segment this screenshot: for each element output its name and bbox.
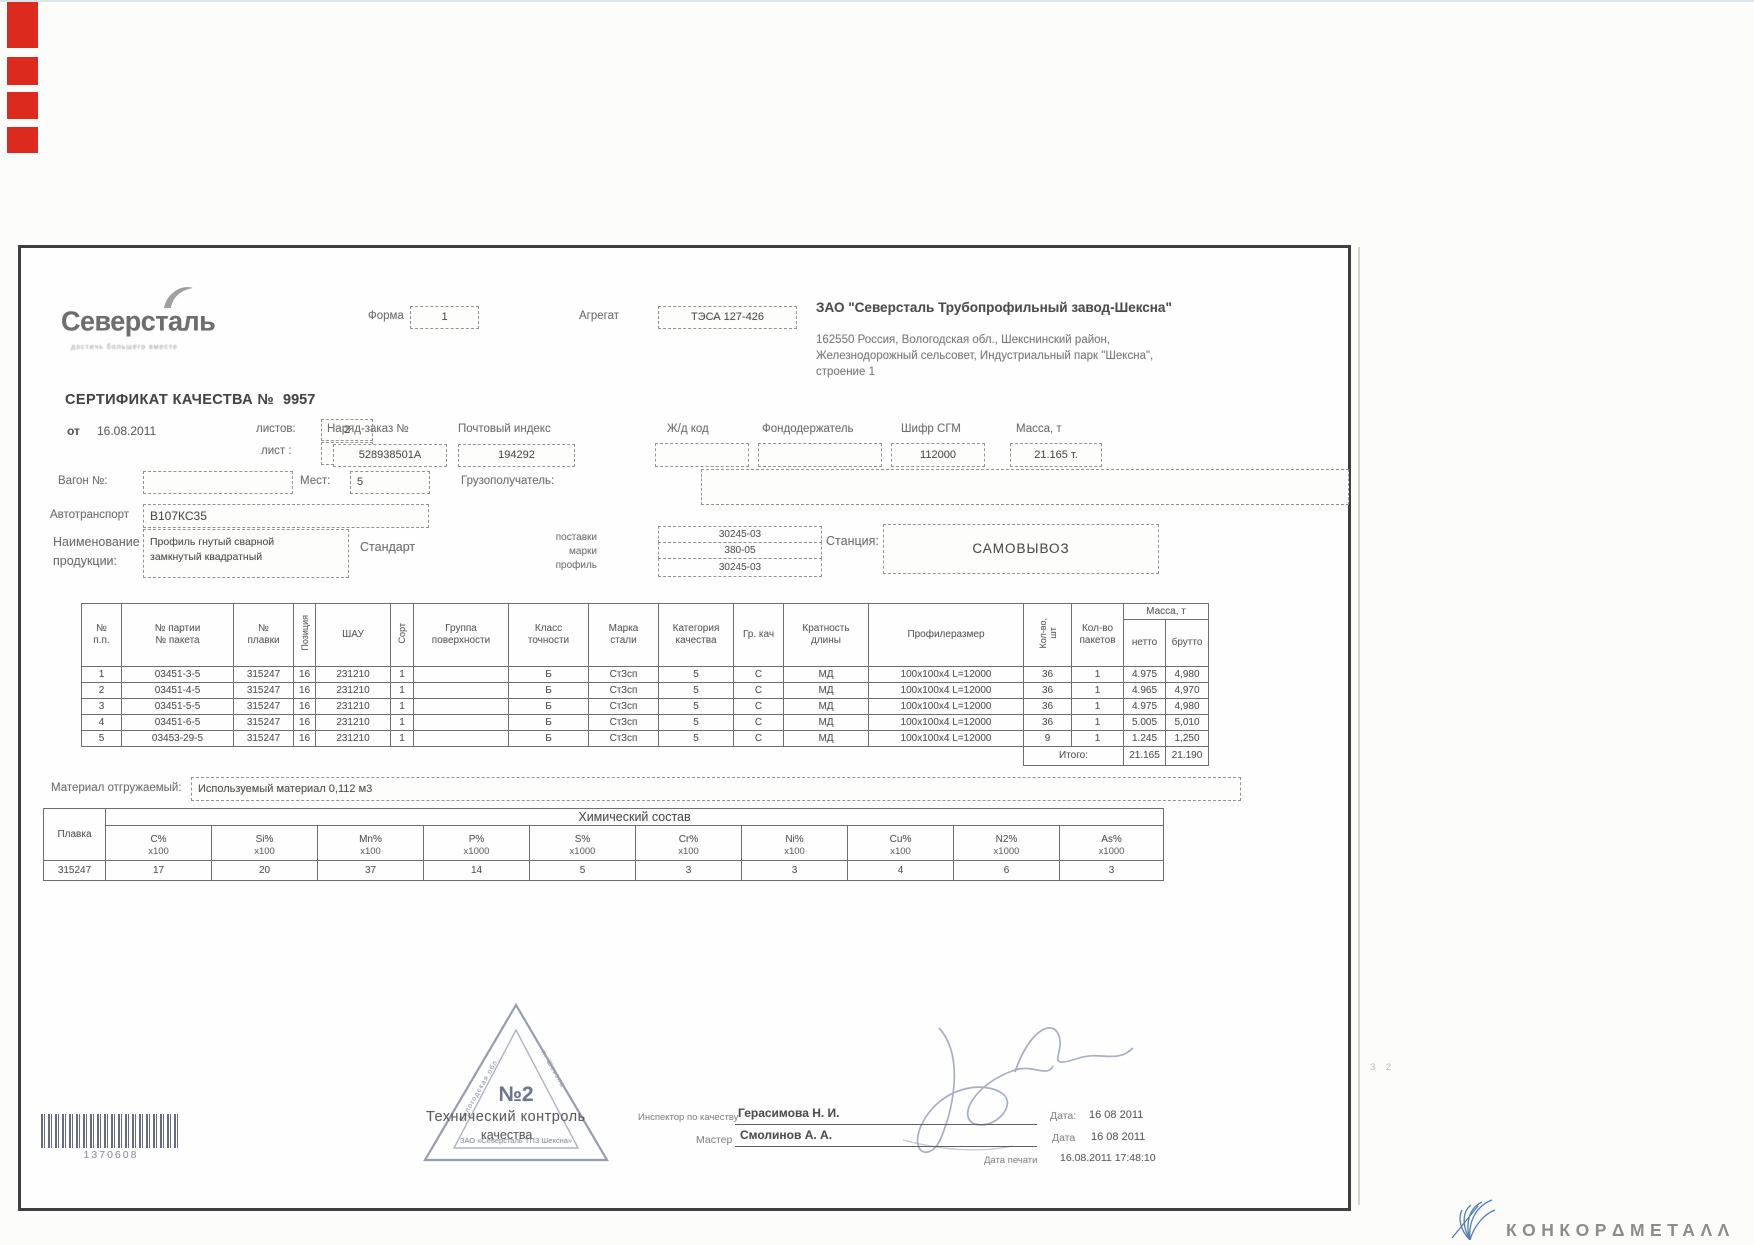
wagon-label: Вагон №: <box>58 475 107 487</box>
table-cell: 3 <box>636 861 742 881</box>
scan-edge-line <box>0 0 1754 2</box>
total-gross: 21.190 <box>1166 747 1209 766</box>
company-address-line: Железнодорожный сельсовет, Индустриальны… <box>816 348 1246 364</box>
master-date: 16 08 2011 <box>1091 1131 1145 1143</box>
table-cell: Ст3сп <box>589 731 659 747</box>
scan-artifact-red-mark <box>7 92 38 119</box>
master-name: Смолинов А. А. <box>740 1128 832 1142</box>
table-cell: 5 <box>82 731 122 747</box>
standard-row-value-box: 30245-03 <box>658 558 822 577</box>
certificate-title: СЕРТИФИКАТ КАЧЕСТВА № <box>65 392 274 408</box>
fundholder-label: Фондодержатель <box>762 423 854 435</box>
scan-artifact-red-mark <box>7 57 38 85</box>
table-header-cell: Профилеразмер <box>869 604 1024 667</box>
table-cell <box>414 667 509 683</box>
table-cell: 231210 <box>316 667 391 683</box>
table-cell: 100x100x4 L=12000 <box>869 683 1024 699</box>
brand-swoosh-icon <box>161 284 195 315</box>
table-cell: 4 <box>848 861 954 881</box>
print-date-label: Дата печати <box>984 1155 1037 1166</box>
table-cell: МД <box>784 731 869 747</box>
table-header-cell: № партии № пакета <box>122 604 234 667</box>
table-cell: Б <box>509 715 589 731</box>
master-label: Мастер <box>696 1134 732 1146</box>
table-header-cell: Категория качества <box>659 604 734 667</box>
table-cell: Б <box>509 683 589 699</box>
table-cell: Б <box>509 731 589 747</box>
sgm-cipher-label: Шифр СГМ <box>901 423 961 435</box>
table-cell: 5.005 <box>1124 715 1166 731</box>
station-value-box: САМОВЫВОЗ <box>883 524 1159 574</box>
table-cell: С <box>734 731 784 747</box>
product-name-label: Наименование <box>53 535 140 549</box>
standard-row-value-box: 380-05 <box>658 542 822 559</box>
mass-label: Масса, т <box>1016 423 1062 435</box>
konkord-fan-icon <box>1450 1198 1496 1245</box>
table-cell <box>414 699 509 715</box>
table-cell: 5 <box>659 667 734 683</box>
table-cell: С <box>734 715 784 731</box>
table-cell: 03451-4-5 <box>122 683 234 699</box>
table-header-cell: Кол-во, шт <box>1024 604 1072 667</box>
table-cell: Б <box>509 699 589 715</box>
table-cell: 5,010 <box>1166 715 1209 731</box>
signature-line <box>735 1146 1037 1147</box>
material-label: Материал отгружаемый: <box>51 782 182 794</box>
rail-code-label: Ж/д код <box>667 423 709 435</box>
inspector-name: Герасимова Н. И. <box>738 1106 840 1120</box>
total-label: Итого: <box>1024 747 1124 766</box>
table-cell: С <box>734 667 784 683</box>
table-cell: 1 <box>1072 731 1124 747</box>
table-cell: 4.965 <box>1124 683 1166 699</box>
table-header-cell: Позиция <box>294 604 316 667</box>
barcode-number: 1370608 <box>51 1149 171 1161</box>
table-header-cell: Ni%x100 <box>742 826 848 861</box>
table-header-cell: № плавки <box>234 604 294 667</box>
date-label: от <box>67 424 80 438</box>
table-cell: 231210 <box>316 699 391 715</box>
table-cell: 5 <box>530 861 636 881</box>
table-total-row: Итого: 21.165 21.190 <box>82 747 1209 766</box>
table-cell: 315247 <box>44 861 106 881</box>
table-cell: 4.975 <box>1124 667 1166 683</box>
table-cell: 03451-3-5 <box>122 667 234 683</box>
table-cell: 03453-29-5 <box>122 731 234 747</box>
table-row: 315247 17 20 37 14 5 3 3 4 6 3 <box>44 861 1164 881</box>
sgm-cipher-value-box: 112000 <box>891 443 985 467</box>
table-cell: 4,980 <box>1166 699 1209 715</box>
table-cell: 231210 <box>316 731 391 747</box>
table-cell: МД <box>784 715 869 731</box>
table-cell: 231210 <box>316 683 391 699</box>
technical-control-text: Технический контроль <box>426 1109 586 1125</box>
table-cell: 3 <box>82 699 122 715</box>
table-cell: МД <box>784 667 869 683</box>
table-cell: 16 <box>294 683 316 699</box>
signature-scribble-icon <box>843 1020 1058 1175</box>
table-cell: 315247 <box>234 699 294 715</box>
table-cell: 5 <box>659 731 734 747</box>
table-cell: МД <box>784 699 869 715</box>
table-cell: 100x100x4 L=12000 <box>869 731 1024 747</box>
page-mark: 3 2 <box>1370 1062 1395 1073</box>
technical-control-text: качества <box>481 1128 532 1142</box>
quality-control-stamp-icon: №2 Вологодская обл. п. Шексна ЗАО «Север… <box>417 1000 615 1171</box>
table-cell: 1 <box>1072 683 1124 699</box>
table-header-cell: № п.п. <box>82 604 122 667</box>
aggregate-label: Агрегат <box>579 310 619 322</box>
table-cell: 5 <box>659 699 734 715</box>
table-cell: 03451-6-5 <box>122 715 234 731</box>
table-header-cell: Сорт <box>391 604 414 667</box>
table-header-cell: Cr%x100 <box>636 826 742 861</box>
product-name-label: продукции: <box>53 554 117 568</box>
table-cell: С <box>734 683 784 699</box>
table-header-cell: Группа поверхности <box>414 604 509 667</box>
consignee-value-box <box>701 469 1349 505</box>
table-header-cell: Масса, т <box>1124 604 1209 620</box>
company-address-line: 162550 Россия, Вологодская обл., Шекснин… <box>816 332 1246 348</box>
form-value-box: 1 <box>410 306 479 329</box>
chem-table-title: Химический состав <box>106 809 1164 826</box>
table-cell: 1,250 <box>1166 731 1209 747</box>
table-cell: Ст3сп <box>589 715 659 731</box>
standard-row-label: поставки <box>521 532 597 543</box>
table-header-cell: ШАУ <box>316 604 391 667</box>
table-cell: 6 <box>954 861 1060 881</box>
table-header-cell: As%x1000 <box>1060 826 1164 861</box>
table-cell: 36 <box>1024 715 1072 731</box>
table-cell: 1 <box>1072 667 1124 683</box>
page-edge-line <box>1358 247 1360 1205</box>
table-header-cell: брутто <box>1166 620 1209 667</box>
table-cell: МД <box>784 683 869 699</box>
brand-tagline: достичь большего вместе <box>71 344 178 351</box>
date-label: Дата <box>1052 1132 1075 1144</box>
table-cell: 1 <box>1072 699 1124 715</box>
table-cell: 5 <box>659 715 734 731</box>
date-value: 16.08.2011 <box>97 424 156 438</box>
consignee-label: Грузополучатель: <box>461 475 554 487</box>
table-cell: С <box>734 699 784 715</box>
sheet-label: лист : <box>261 445 292 457</box>
table-cell: Ст3сп <box>589 683 659 699</box>
sheets-label: листов: <box>256 423 296 435</box>
company-address-line: строение 1 <box>816 364 1246 380</box>
table-cell: 17 <box>106 861 212 881</box>
table-cell: 4.975 <box>1124 699 1166 715</box>
scan-artifact-red-mark <box>7 127 38 153</box>
certificate-sheet: Северсталь достичь большего вместе Форма… <box>18 245 1351 1211</box>
table-cell: 37 <box>318 861 424 881</box>
barcode-icon <box>41 1114 181 1148</box>
table-cell: 14 <box>424 861 530 881</box>
postal-index-label: Почтовый индекс <box>458 423 551 435</box>
table-cell: 1 <box>391 683 414 699</box>
signature-line <box>735 1124 1037 1125</box>
table-row: 403451-6-5315247162312101БСт3сп5СМД100x1… <box>82 715 1209 731</box>
order-label: Наряд-заказ № <box>327 423 409 435</box>
table-cell: 1 <box>1072 715 1124 731</box>
table-cell: 36 <box>1024 667 1072 683</box>
auto-transport-value-box: В107КС35 <box>143 504 429 528</box>
table-cell: 20 <box>212 861 318 881</box>
rail-code-value-box <box>655 443 749 467</box>
table-row: 103451-3-5315247162312101БСт3сп5СМД100x1… <box>82 667 1209 683</box>
station-label: Станция: <box>826 534 879 548</box>
table-cell: 315247 <box>234 715 294 731</box>
table-cell: 16 <box>294 667 316 683</box>
product-name-line: замкнутый квадратный <box>150 550 348 565</box>
print-date-value: 16.08.2011 17:48:10 <box>1060 1152 1156 1164</box>
table-header-cell: N2%x1000 <box>954 826 1060 861</box>
table-cell <box>82 747 1024 766</box>
mass-value-box: 21.165 т. <box>1010 443 1102 467</box>
order-value-box: 528938501А <box>333 444 447 467</box>
shipment-table: № п.п. № партии № пакета № плавки Позици… <box>81 603 1209 766</box>
table-cell: 4 <box>82 715 122 731</box>
places-label: Мест: <box>300 475 330 487</box>
certificate-number: 9957 <box>283 392 315 408</box>
table-cell: 9 <box>1024 731 1072 747</box>
table-row: 203451-4-5315247162312101БСт3сп5СМД100x1… <box>82 683 1209 699</box>
table-cell: 1 <box>391 699 414 715</box>
table-cell <box>414 715 509 731</box>
total-net: 21.165 <box>1124 747 1166 766</box>
table-cell: 231210 <box>316 715 391 731</box>
table-header-cell: Гр. кач <box>734 604 784 667</box>
table-cell: 16 <box>294 715 316 731</box>
table-cell: 315247 <box>234 667 294 683</box>
table-header-cell: Si%x100 <box>212 826 318 861</box>
table-cell: 1 <box>391 731 414 747</box>
standard-label: Стандарт <box>360 540 415 554</box>
table-cell: 4,970 <box>1166 683 1209 699</box>
table-cell: Ст3сп <box>589 699 659 715</box>
standard-row-label: марки <box>521 546 597 557</box>
table-header-cell: Класс точности <box>509 604 589 667</box>
table-header-cell: S%x1000 <box>530 826 636 861</box>
table-cell <box>414 683 509 699</box>
table-header-cell: Кол-во пакетов <box>1072 604 1124 667</box>
scan-artifact-red-mark <box>7 2 38 48</box>
table-cell: 16 <box>294 731 316 747</box>
table-cell: 1 <box>391 667 414 683</box>
table-row: 503453-29-5315247162312101БСт3сп5СМД100x… <box>82 731 1209 747</box>
inspector-date: 16 08 2011 <box>1089 1109 1143 1121</box>
material-value-box: Используемый материал 0,112 м3 <box>191 777 1241 801</box>
table-cell: 03451-5-5 <box>122 699 234 715</box>
table-cell: 3 <box>1060 861 1164 881</box>
product-name-line: Профиль гнутый сварной <box>150 535 348 550</box>
table-header-cell: Кратность длины <box>784 604 869 667</box>
table-cell: 1 <box>391 715 414 731</box>
konkord-logo-text: КОНКОРΔМЕТАΛΛ <box>1506 1220 1735 1245</box>
table-row: 303451-5-5315247162312101БСт3сп5СМД100x1… <box>82 699 1209 715</box>
auto-transport-label: Автотранспорт <box>50 509 129 521</box>
table-cell: 16 <box>294 699 316 715</box>
table-cell: Б <box>509 667 589 683</box>
table-cell: 100x100x4 L=12000 <box>869 699 1024 715</box>
table-cell: 5 <box>659 683 734 699</box>
form-label: Форма <box>368 310 404 322</box>
table-cell: 100x100x4 L=12000 <box>869 667 1024 683</box>
date-label: Дата: <box>1050 1110 1076 1122</box>
company-address: 162550 Россия, Вологодская обл., Шекснин… <box>816 332 1246 380</box>
table-cell: 1.245 <box>1124 731 1166 747</box>
standard-row-label: профиль <box>521 560 597 571</box>
table-cell: 315247 <box>234 731 294 747</box>
table-header-cell: Марка стали <box>589 604 659 667</box>
company-name: ЗАО "Северсталь Трубопрофильный завод-Ше… <box>816 300 1266 315</box>
standard-row-value-box: 30245-03 <box>658 526 822 543</box>
table-header-cell: Cu%x100 <box>848 826 954 861</box>
aggregate-value-box: ТЭСА 127-426 <box>658 306 797 329</box>
table-cell: 36 <box>1024 699 1072 715</box>
table-cell: 3 <box>742 861 848 881</box>
places-value-box: 5 <box>350 471 430 494</box>
table-cell: 100x100x4 L=12000 <box>869 715 1024 731</box>
table-header-cell: Mn%x100 <box>318 826 424 861</box>
table-cell: 2 <box>82 683 122 699</box>
svg-text:№2: №2 <box>498 1083 533 1106</box>
fundholder-value-box <box>758 443 882 467</box>
table-header-cell: C%x100 <box>106 826 212 861</box>
wagon-value-box <box>143 471 293 494</box>
product-name-value-box: Профиль гнутый сварной замкнутый квадрат… <box>143 529 349 578</box>
table-cell: 315247 <box>234 683 294 699</box>
inspector-label: Инспектор по качеству <box>638 1112 738 1123</box>
table-cell: 4,980 <box>1166 667 1209 683</box>
table-cell: 1 <box>82 667 122 683</box>
chemical-composition-table: Плавка Химический состав C%x100 Si%x100 … <box>43 808 1164 881</box>
konkord-watermark: КОНКОРΔМЕТАΛΛ <box>1450 1198 1735 1245</box>
table-cell: 36 <box>1024 683 1072 699</box>
table-header-cell: нетто <box>1124 620 1166 667</box>
postal-index-value-box: 194292 <box>458 444 575 467</box>
table-cell <box>414 731 509 747</box>
table-header-cell: Плавка <box>44 809 106 861</box>
table-header-cell: P%x1000 <box>424 826 530 861</box>
table-cell: Ст3сп <box>589 667 659 683</box>
